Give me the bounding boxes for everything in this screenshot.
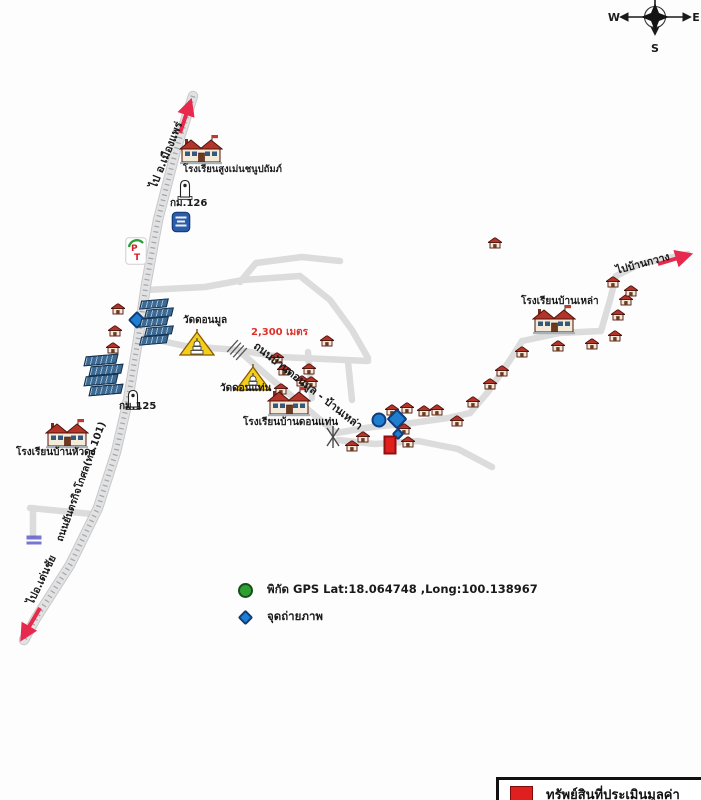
house-icon: [320, 336, 334, 347]
gps-point-icon: [238, 583, 253, 598]
house-icon: [466, 397, 480, 408]
house-icon: [417, 406, 431, 417]
house-icon: [488, 238, 502, 249]
pt-gas-station-icon: PT: [125, 237, 147, 265]
house-icon: [302, 364, 316, 375]
building-row-icon: [88, 384, 123, 397]
map-label-school-sungmen: โรงเรียนสูงเม่นชนูปถัมภ์: [183, 165, 282, 175]
map-label-school-donthaen: โรงเรียนบ้านดอนแท่น: [243, 418, 338, 428]
map-label-school-huadong: โรงเรียนบ้านหัวดง: [16, 448, 96, 458]
legend-gps-row: พิกัด GPS Lat:18.064748 ,Long:100.138967: [238, 581, 538, 599]
house-icon: [430, 405, 444, 416]
km-marker-icon: [176, 178, 194, 200]
map-label-to-ban-kwang: ไปบ้านกวาง: [615, 252, 671, 276]
marker-layer: ไป อ.เมืองแพร่โรงเรียนสูงเม่นชนูปถัมภ์กม…: [0, 0, 701, 800]
house-icon: [495, 366, 509, 377]
house-icon: [345, 441, 359, 452]
photo-point-icon: [390, 412, 405, 427]
house-icon: [624, 286, 638, 297]
compass-rose: W E S: [600, 0, 701, 58]
photo-legend-text: จุดถ่ายภาพ: [267, 608, 323, 626]
map-page: ไป อ.เมืองแพร่โรงเรียนสูงเม่นชนูปถัมภ์กม…: [0, 0, 701, 800]
legend-photo-row: จุดถ่ายภาพ: [238, 608, 538, 626]
svg-text:T: T: [134, 253, 141, 263]
house-icon: [515, 347, 529, 358]
house-icon: [483, 379, 497, 390]
compass-west-label: W: [608, 11, 620, 24]
building-row-icon: [139, 334, 169, 345]
house-icon: [606, 277, 620, 288]
school-icon: [179, 135, 223, 165]
house-icon: [108, 326, 122, 337]
property-legend-text: ทรัพย์สินที่ประเมินมูลค่า: [546, 784, 680, 800]
house-icon: [111, 304, 125, 315]
building-cluster-icon: [85, 355, 121, 395]
photo-point-circle-icon: [372, 413, 387, 428]
map-label-wat-donthaen: วัดดอนแท่น: [220, 384, 271, 394]
gps-legend-text: พิกัด GPS Lat:18.064748 ,Long:100.138967: [267, 581, 538, 599]
map-label-to-denchai: ไปอ.เด่นชัย: [26, 554, 59, 606]
map-label-km-125: กม.125: [119, 402, 156, 412]
compass-star-icon: [641, 3, 669, 31]
map-label-wat-donmun: วัดดอนมูล: [183, 316, 227, 326]
building-cluster-icon: [140, 299, 171, 344]
property-swatch-icon: [510, 786, 533, 800]
house-icon: [585, 339, 599, 350]
school-icon: [532, 305, 576, 335]
house-icon: [106, 343, 120, 354]
property-legend-box: ทรัพย์สินที่ประเมินมูลค่า: [496, 777, 701, 800]
temple-icon: [179, 329, 215, 357]
small-blue-sign-icon: [27, 535, 42, 546]
blue-logo-icon: [172, 212, 191, 233]
map-label-distance: 2,300 เมตร: [251, 328, 308, 338]
map-label-school-banlao: โรงเรียนบ้านเหล่า: [521, 297, 599, 307]
compass-south-label: S: [651, 42, 659, 55]
school-icon: [45, 419, 89, 449]
compass-east-label: E: [692, 11, 700, 24]
house-icon: [551, 341, 565, 352]
photo-point-icon: [238, 609, 254, 625]
appraised-property-marker: [384, 436, 397, 455]
house-icon: [450, 416, 464, 427]
house-icon: [608, 331, 622, 342]
map-label-km-126: กม.126: [170, 199, 207, 209]
house-icon: [611, 310, 625, 321]
house-icon: [401, 437, 415, 448]
map-legend: พิกัด GPS Lat:18.064748 ,Long:100.138967…: [238, 581, 538, 635]
